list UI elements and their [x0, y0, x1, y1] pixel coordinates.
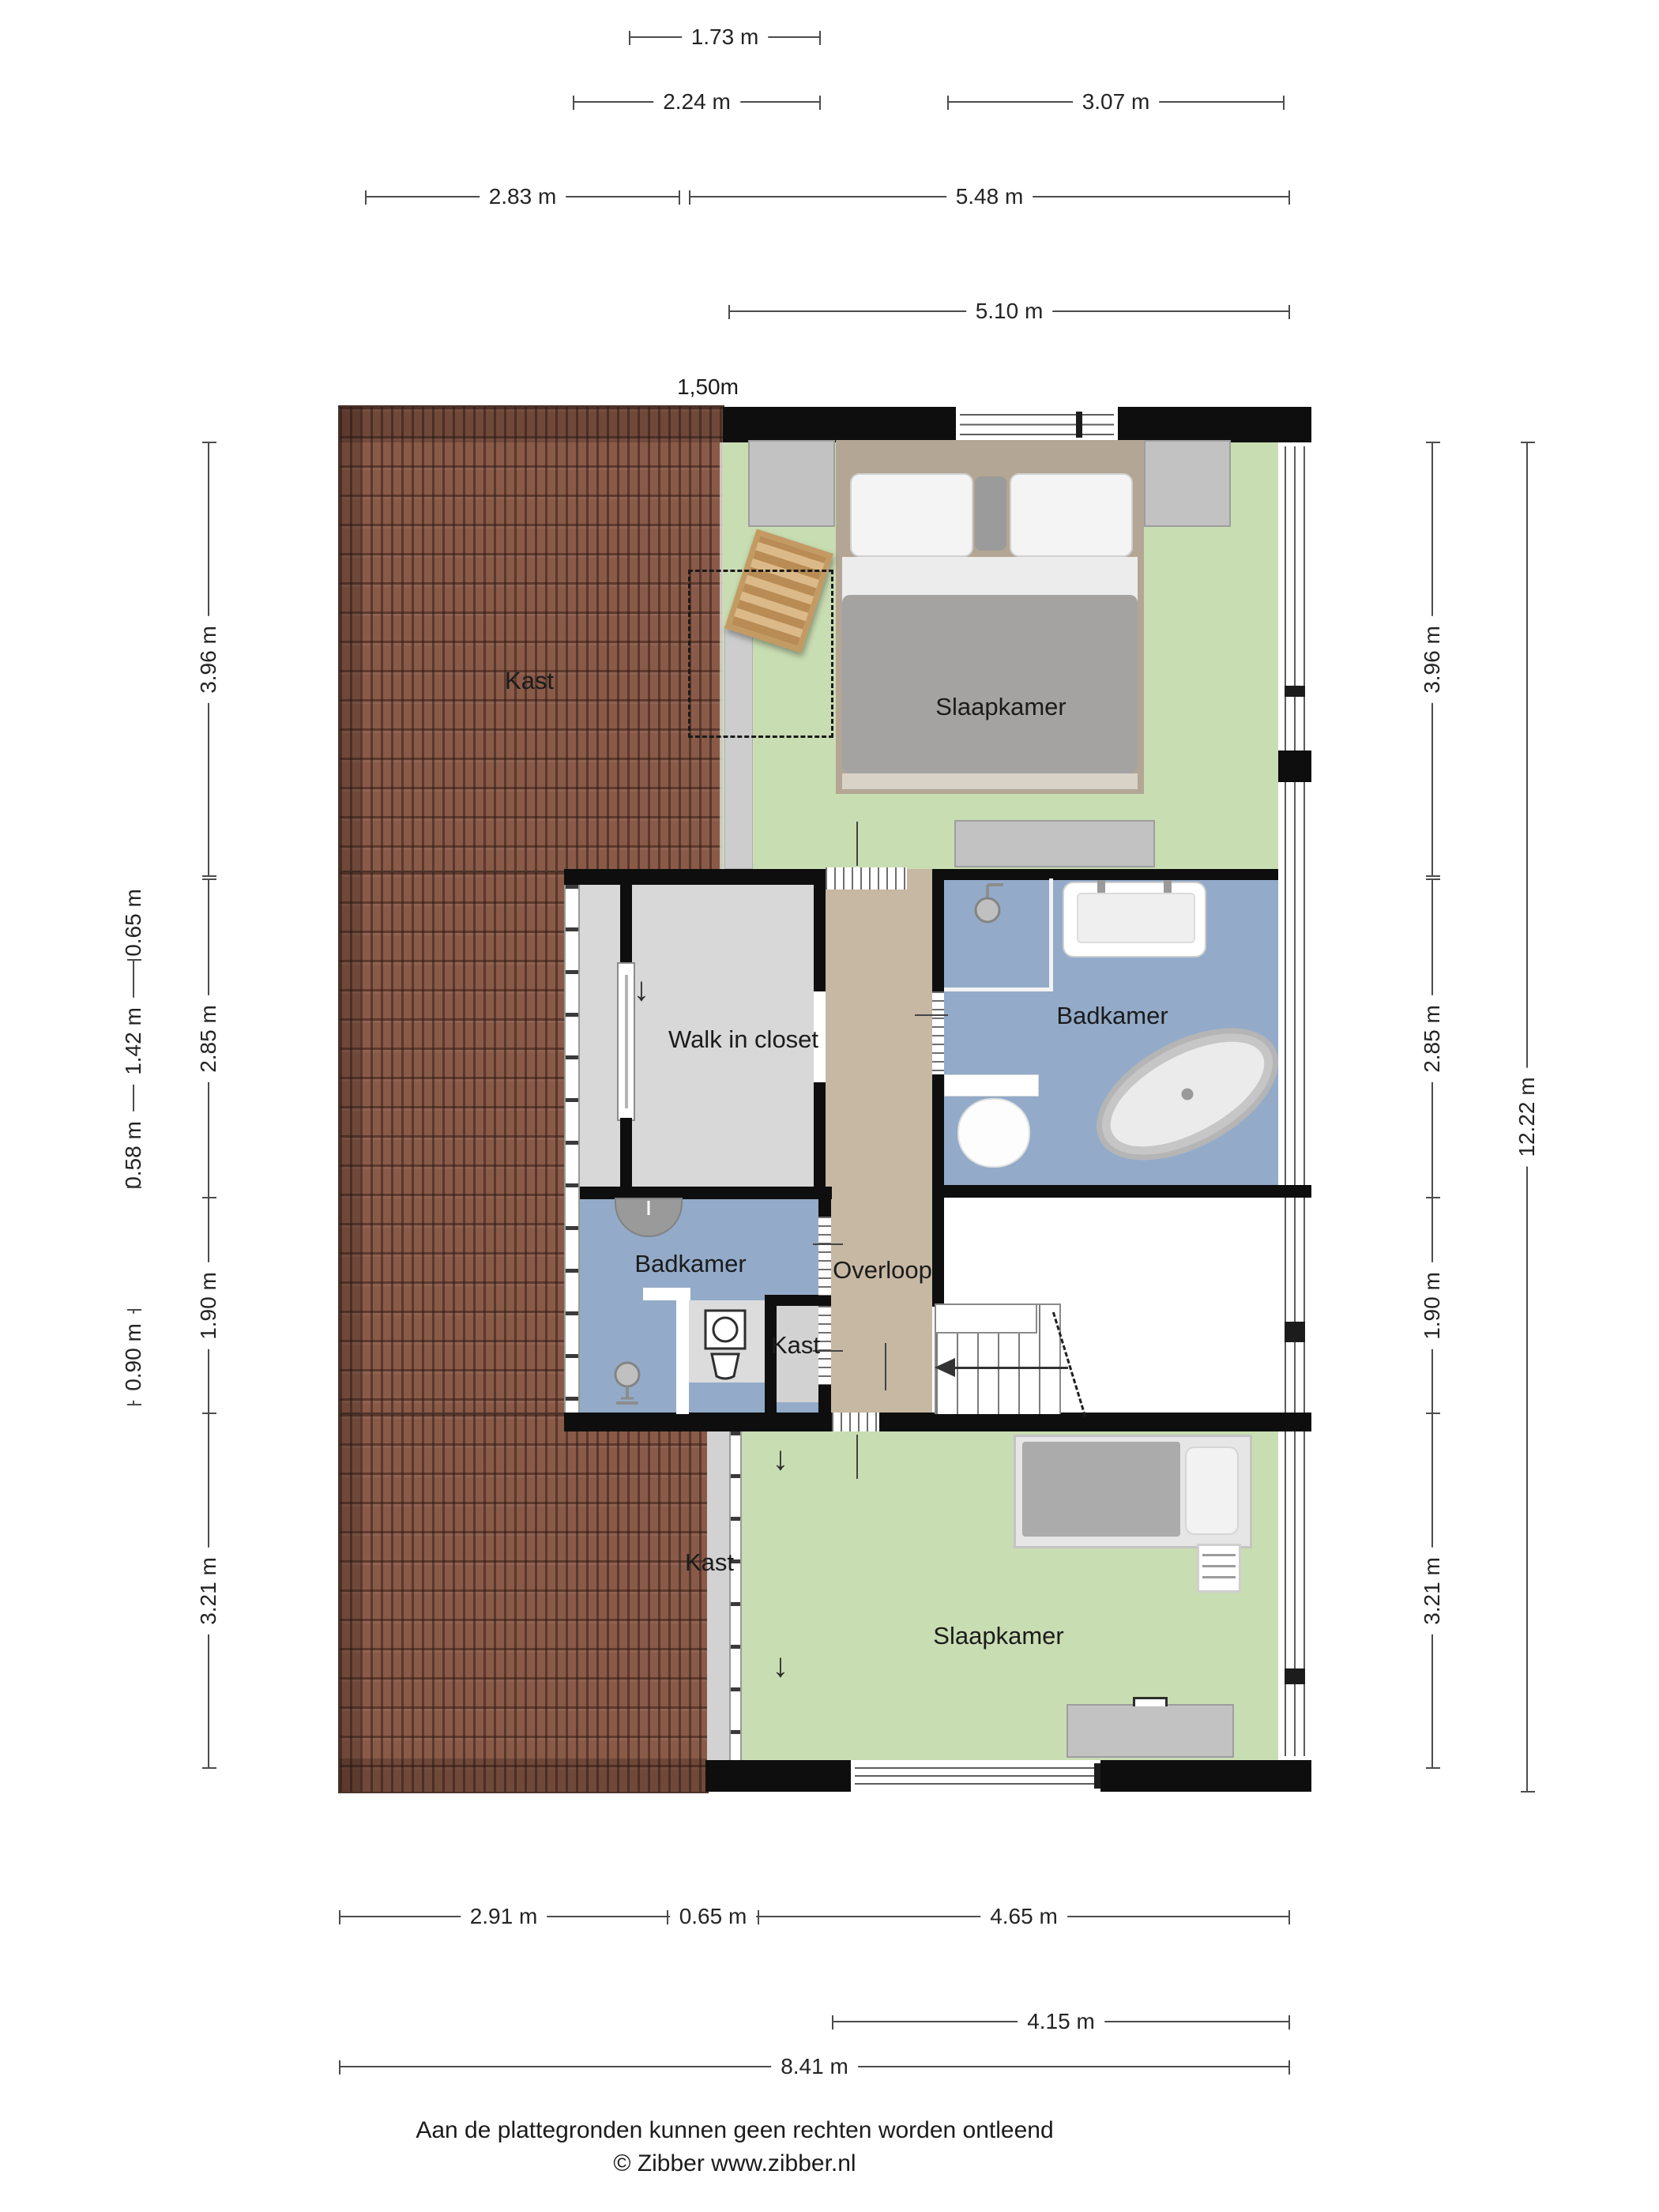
dim-right-190: 1.90 m: [1431, 1198, 1433, 1413]
dim-bottom-065: 0.65 m: [668, 1916, 758, 1917]
dim-left-285: 2.85 m: [208, 879, 209, 1198]
stairs-landing: [935, 1303, 1037, 1334]
label-kast-roof: Kast: [505, 667, 554, 695]
stairs-direction-arrow: [935, 1358, 955, 1377]
dim-left-321: 3.21 m: [208, 1413, 209, 1768]
pillow-center: [975, 476, 1006, 551]
label-badkamer-top: Badkamer: [1056, 1002, 1168, 1030]
pillow-left: [850, 473, 973, 557]
roof-eave-top: [340, 407, 723, 442]
dim-left-065: 0.65 m: [133, 885, 134, 960]
wall-wic-right-upper: [814, 869, 826, 991]
dim-right-285: 2.85 m: [1431, 879, 1433, 1198]
dim-top-548: 5.48 m: [690, 196, 1289, 197]
window-right-mullion-3: [1285, 1668, 1305, 1684]
ref-tick: [915, 1014, 948, 1016]
dim-bottom-415: 4.15 m: [833, 2021, 1289, 2022]
wall-midband-bottom-left: [564, 1413, 832, 1431]
washing-machine-icon: [700, 1308, 750, 1382]
wall-top-left: [723, 407, 956, 442]
label-slaapkamer-bottom: Slaapkamer: [933, 1622, 1063, 1650]
shower-screen-horizontal: [944, 987, 1053, 991]
window-right-mullion-2: [1285, 1322, 1305, 1342]
ref-tick: [856, 1435, 858, 1479]
floorplan-page: ↓ ↓ ↓ Kast Slaapkamer Walk in closet Bad…: [0, 0, 1659, 2212]
wall-badkamer-bottom: [932, 1185, 1311, 1198]
wall-bottom-left: [705, 1760, 851, 1792]
toilet-icon: [957, 1098, 1030, 1168]
wall-wic-partition-lower: [620, 1118, 632, 1187]
slope-arrow-bedroom-2: ↓: [773, 1646, 789, 1684]
label-slaapkamer-top: Slaapkamer: [935, 693, 1066, 721]
sink-basin: [1077, 893, 1195, 943]
desk: [1066, 1704, 1234, 1758]
wall-right-seg1: [1278, 750, 1311, 782]
dim-top-283: 2.83 m: [366, 196, 679, 197]
label-overloop: Overloop: [833, 1256, 932, 1285]
double-bed: [836, 440, 1144, 794]
bed-foot: [842, 773, 1138, 789]
roof-tiles-top: [340, 407, 723, 872]
slope-arrow-bedroom-1: ↓: [773, 1439, 789, 1477]
door-kast-mid: [818, 1306, 831, 1385]
dim-right-1222: 12.22 m: [1526, 442, 1528, 1792]
dim-left-190: 1.90 m: [208, 1198, 209, 1413]
shower-head-icon: [605, 1357, 649, 1409]
window-top: [956, 407, 1118, 442]
wall-wic-bottom: [564, 1187, 832, 1199]
roof-tiles-middle: [340, 872, 564, 1414]
desk-handle: [1133, 1697, 1168, 1706]
dim-bottom-291: 2.91 m: [340, 1916, 668, 1917]
shower-head-icon: [965, 880, 1010, 931]
double-sink: [1063, 882, 1206, 957]
label-kast-bottom: Kast: [685, 1548, 734, 1577]
label-badkamer-bottom: Badkamer: [634, 1250, 746, 1278]
strip-kast-bottom: [707, 1431, 729, 1760]
door-slaapkamer-bottom: [832, 1413, 879, 1431]
dim-bottom-465: 4.65 m: [758, 1916, 1289, 1917]
wall-corridor-left-c: [818, 1385, 831, 1431]
dim-left-396: 3.96 m: [208, 442, 209, 876]
pillow-right: [1010, 473, 1133, 557]
dim-top-224: 2.24 m: [574, 101, 820, 103]
toilet-cistern: [944, 1074, 1039, 1097]
bed-ladder: [1197, 1544, 1241, 1593]
dim-top-307: 3.07 m: [948, 101, 1284, 103]
roof-edge-left: [340, 407, 360, 1792]
door-badkamer-top: [932, 991, 944, 1074]
roof-tiles-bottom: [340, 1414, 707, 1792]
nightstand-right: [1144, 440, 1231, 527]
window-strip-wic: [564, 885, 580, 1413]
mattress: [1022, 1442, 1180, 1537]
door-overloop-slaapkamer: [826, 867, 907, 890]
headroom-dashed-zone: [688, 570, 833, 738]
faucet-icon: [1164, 880, 1172, 893]
dim-right-321: 3.21 m: [1431, 1413, 1433, 1768]
label-kast-mid: Kast: [771, 1331, 820, 1360]
footer-copyright: © Zibber www.zibber.nl: [0, 2150, 1469, 2177]
wall-wic-top: [564, 869, 822, 885]
wall-bottom-right: [1100, 1760, 1311, 1792]
label-walk-in-closet: Walk in closet: [668, 1025, 818, 1054]
label-ceiling-height: 1,50m: [677, 374, 739, 400]
partition-screen-v: [676, 1288, 689, 1414]
single-bed: [1014, 1435, 1252, 1548]
dim-right-396: 3.96 m: [1431, 442, 1433, 876]
wall-midband-bottom-right: [879, 1413, 1311, 1431]
pillow: [1185, 1446, 1239, 1535]
slope-arrow-wic: ↓: [634, 970, 650, 1008]
footer-disclaimer: Aan de plattegronden kunnen geen rechten…: [0, 2117, 1469, 2144]
wall-corridor-left-a: [818, 1187, 831, 1217]
ref-tick: [813, 1243, 843, 1245]
faucet-icon: [1097, 880, 1105, 893]
dim-left-058: 0.58 m: [133, 1122, 134, 1187]
window-top-mullion: [1076, 412, 1082, 438]
window-bottom: [851, 1760, 1100, 1792]
nightstand-left: [748, 440, 835, 527]
wall-stair-left: [932, 1196, 944, 1307]
wall-corridor-left-b: [818, 1296, 831, 1306]
dim-left-090: 0.90 m: [133, 1310, 134, 1405]
dresser: [954, 820, 1155, 867]
dim-top-173: 1.73 m: [630, 36, 820, 38]
ref-tick: [885, 1343, 886, 1390]
dim-top-510: 5.10 m: [729, 310, 1289, 312]
bed-duvet: [842, 595, 1138, 773]
room-overloop: [826, 869, 932, 1414]
wall-top-right: [1118, 407, 1311, 442]
wall-badkamer-left-lower: [932, 1074, 944, 1197]
roof-eave-bottom: [340, 1759, 707, 1792]
wall-badkamer-left-upper: [932, 869, 944, 991]
stairs-direction-line: [951, 1367, 1068, 1369]
dim-bottom-841: 8.41 m: [340, 2066, 1289, 2067]
wall-wic-partition-upper: [620, 883, 632, 962]
window-right-band: [1278, 442, 1311, 1760]
dim-left-142: 1.42 m: [133, 960, 134, 1122]
wall-wic-right-lower: [814, 1082, 826, 1198]
faucet-icon: [648, 1201, 650, 1215]
shower-screen-vertical: [1049, 878, 1053, 991]
window-right-mullion-1: [1285, 686, 1305, 697]
wall-badkamer-top: [932, 869, 1278, 880]
door-badkamer-bottom: [818, 1217, 831, 1296]
ref-tick: [856, 822, 858, 866]
window-strip-slaapkamer-bottom: [729, 1431, 742, 1760]
